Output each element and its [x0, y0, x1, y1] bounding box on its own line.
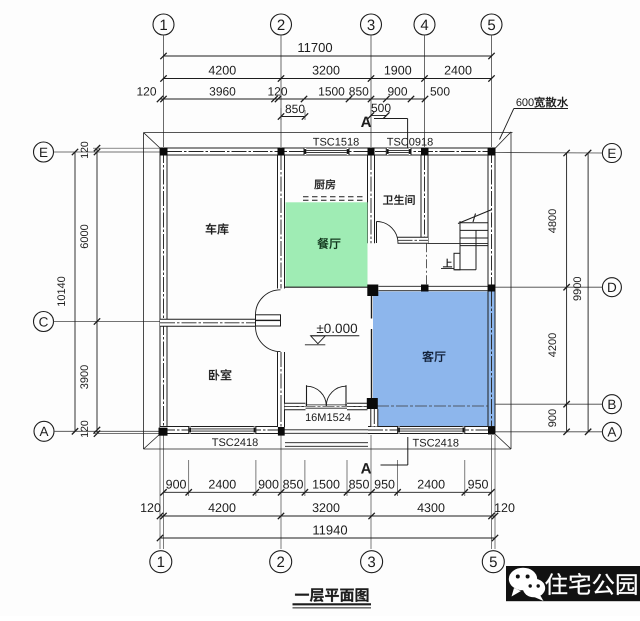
svg-text:900: 900 — [258, 477, 279, 491]
svg-text:5: 5 — [489, 554, 497, 571]
svg-text:11700: 11700 — [297, 40, 332, 55]
svg-text:3900: 3900 — [79, 365, 91, 389]
svg-text:850: 850 — [285, 102, 305, 116]
svg-text:3: 3 — [367, 17, 375, 34]
svg-text:10140: 10140 — [56, 276, 68, 307]
svg-text:4: 4 — [420, 17, 428, 34]
svg-text:C: C — [39, 314, 49, 329]
svg-text:600: 600 — [516, 97, 534, 109]
svg-text:120: 120 — [136, 85, 156, 99]
svg-text:120: 120 — [140, 501, 161, 515]
svg-text:A: A — [607, 425, 616, 440]
svg-text:120: 120 — [79, 420, 91, 438]
svg-text:E: E — [607, 146, 616, 161]
svg-text:±0.000: ±0.000 — [316, 321, 357, 336]
svg-text:3960: 3960 — [209, 85, 236, 99]
svg-text:A: A — [361, 461, 372, 478]
svg-text:D: D — [607, 280, 617, 295]
svg-text:2400: 2400 — [417, 477, 445, 491]
svg-text:4200: 4200 — [208, 64, 236, 78]
svg-text:TSC2418: TSC2418 — [212, 437, 258, 449]
svg-text:950: 950 — [468, 477, 489, 491]
svg-text:2: 2 — [277, 554, 285, 571]
svg-text:A: A — [39, 424, 48, 439]
svg-text:3200: 3200 — [312, 64, 340, 78]
svg-text:A: A — [361, 114, 372, 131]
svg-text:9900: 9900 — [572, 276, 584, 300]
svg-text:850: 850 — [283, 477, 304, 491]
svg-text:3200: 3200 — [312, 501, 340, 515]
svg-text:4800: 4800 — [547, 209, 559, 233]
svg-text:4200: 4200 — [208, 501, 236, 515]
svg-text:6000: 6000 — [79, 224, 91, 248]
svg-text:1900: 1900 — [384, 64, 412, 78]
svg-text:11940: 11940 — [312, 523, 347, 538]
svg-text:120: 120 — [79, 141, 91, 159]
svg-text:900: 900 — [387, 85, 407, 99]
svg-text:850: 850 — [349, 477, 370, 491]
svg-text:850: 850 — [349, 85, 369, 99]
svg-text:5: 5 — [487, 17, 495, 34]
svg-text:900: 900 — [547, 409, 559, 427]
svg-text:3: 3 — [367, 554, 375, 571]
svg-text:4200: 4200 — [547, 333, 559, 357]
svg-text:TSC0918: TSC0918 — [387, 137, 433, 149]
svg-text:TSC1518: TSC1518 — [313, 137, 359, 149]
svg-text:2400: 2400 — [444, 64, 472, 78]
svg-text:950: 950 — [374, 477, 395, 491]
svg-text:B: B — [607, 397, 616, 412]
svg-text:2400: 2400 — [208, 477, 236, 491]
svg-text:120: 120 — [494, 501, 515, 515]
svg-text:2: 2 — [277, 17, 285, 34]
svg-text:900: 900 — [166, 477, 187, 491]
svg-text:1500: 1500 — [318, 85, 345, 99]
svg-text:TSC2418: TSC2418 — [413, 438, 459, 450]
svg-text:1: 1 — [159, 17, 167, 34]
svg-text:16M1524: 16M1524 — [305, 412, 351, 424]
svg-text:120: 120 — [267, 85, 287, 99]
svg-text:1: 1 — [157, 554, 165, 571]
svg-text:E: E — [39, 145, 48, 160]
svg-text:4300: 4300 — [417, 501, 445, 515]
svg-text:500: 500 — [430, 85, 450, 99]
svg-text:1500: 1500 — [312, 477, 340, 491]
